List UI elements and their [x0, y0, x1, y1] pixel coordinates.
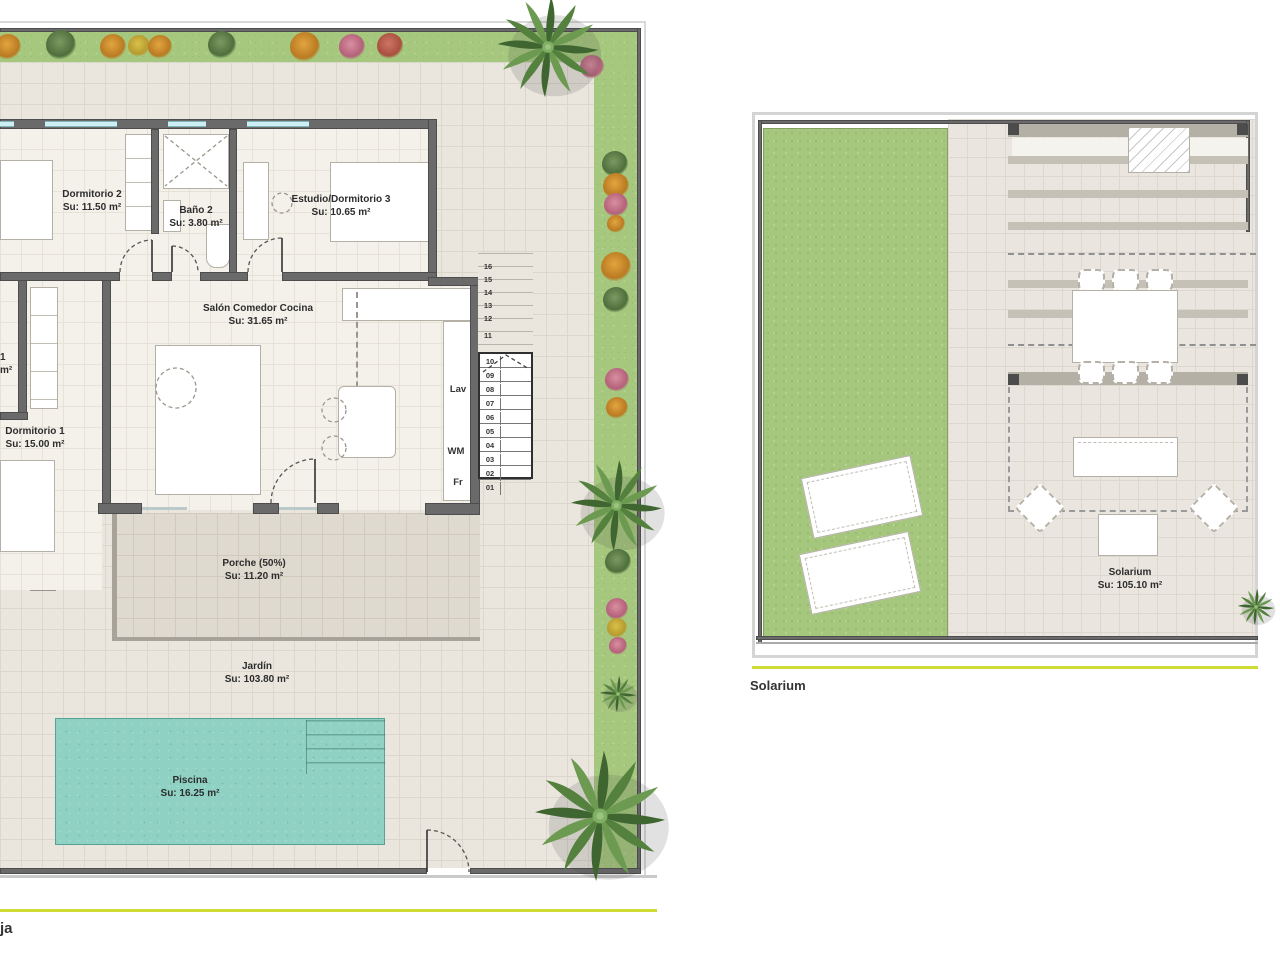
stair-number: 12 — [479, 314, 497, 323]
flower-bed — [339, 34, 365, 60]
wall — [200, 272, 248, 281]
room-name: Porche (50%) — [169, 557, 339, 570]
plot-wall — [758, 120, 762, 644]
room-area: Su: 105.10 m² — [1045, 579, 1215, 592]
stair-number: 14 — [479, 288, 497, 297]
plot-wall-shadow — [756, 642, 1258, 644]
plot-wall — [756, 636, 1258, 640]
outdoor-chair — [1112, 361, 1139, 384]
flower-bed — [604, 193, 628, 217]
pillar — [98, 503, 142, 514]
pergola-post — [1237, 374, 1248, 385]
room-name: Salón Comedor Cocina — [173, 302, 343, 315]
room-label-clipped: 1 m² — [0, 351, 12, 377]
plant-icon — [597, 673, 639, 715]
room-area: Su: 15.00 m² — [0, 438, 120, 451]
room-area: Su: 11.20 m² — [169, 570, 339, 583]
flower-bed — [601, 252, 631, 282]
bush — [603, 287, 629, 313]
room-label-porche: Porche (50%) Su: 11.20 m² — [169, 557, 339, 583]
plan-caption-solarium: Solarium — [750, 678, 806, 693]
bed — [0, 460, 55, 552]
flower-bed — [609, 637, 627, 655]
wall — [425, 503, 480, 515]
glass-sill — [279, 507, 317, 510]
room-area: Su: 103.80 m² — [172, 673, 342, 686]
room-label-solarium: Solarium Su: 105.10 m² — [1045, 566, 1215, 592]
wall — [428, 119, 437, 285]
outdoor-chair — [1078, 361, 1105, 384]
flower-bed — [290, 32, 320, 62]
flower-bed — [377, 33, 403, 59]
outdoor-chair — [1146, 269, 1173, 292]
room-name: Estudio/Dormitorio 3 — [256, 193, 426, 206]
outdoor-sofa — [1073, 437, 1178, 477]
window — [168, 121, 206, 127]
pergola-post — [1237, 124, 1248, 135]
room-area: Su: 16.25 m² — [105, 787, 275, 800]
outdoor-chair — [1112, 269, 1139, 292]
room-name: Dormitorio 2 — [7, 188, 177, 201]
room-area: Su: 10.65 m² — [256, 206, 426, 219]
plan-caption-clipped: ja — [0, 920, 13, 937]
flower-bed — [606, 397, 628, 419]
room-name: Jardín — [172, 660, 342, 673]
pergola-slat — [1008, 190, 1248, 198]
stair-number: 11 — [479, 331, 497, 340]
pergola-slat — [1008, 222, 1248, 230]
pergola-post — [1008, 124, 1019, 135]
flower-bed — [128, 35, 150, 57]
room-label-salon: Salón Comedor Cocina Su: 31.65 m² — [173, 302, 343, 328]
room-area: Su: 31.65 m² — [173, 315, 343, 328]
kitchen-counter-top — [342, 288, 473, 321]
flower-bed — [605, 368, 629, 392]
plot-wall — [0, 868, 427, 874]
caption-rule-yellow — [752, 666, 1258, 669]
vanity — [30, 287, 58, 409]
wall — [18, 280, 27, 420]
room-label-estudio: Estudio/Dormitorio 3 Su: 10.65 m² — [256, 193, 426, 219]
room-label-dormitorio1: Dormitorio 1 Su: 15.00 m² — [0, 425, 120, 451]
window — [0, 121, 14, 127]
room-name: Dormitorio 1 — [0, 425, 120, 438]
outdoor-chair — [1078, 269, 1105, 292]
pergola-dashed-line — [1008, 253, 1256, 255]
room-label-piscina: Piscina Su: 16.25 m² — [105, 774, 275, 800]
window — [45, 121, 117, 127]
porch-edge — [112, 637, 480, 641]
flower-bed — [100, 34, 126, 60]
wall — [152, 272, 172, 281]
wall — [0, 412, 28, 420]
caption-rule-yellow — [0, 909, 657, 912]
bush — [46, 30, 76, 60]
appliance-label-dishwasher: Lav — [443, 384, 473, 395]
wall — [282, 272, 437, 281]
porch-edge — [112, 513, 117, 641]
pool-steps — [306, 720, 385, 774]
floor-plan-image: Lav WM Fr 16 15 14 13 12 11 — [0, 0, 1280, 960]
pergola-post — [1008, 374, 1019, 385]
outdoor-dining-table — [1072, 290, 1178, 363]
toilet — [206, 224, 230, 268]
room-label-jardin: Jardín Su: 103.80 m² — [172, 660, 342, 686]
sofa-set — [155, 345, 261, 495]
shower — [163, 134, 229, 189]
coffee-table — [1098, 514, 1158, 556]
flower-bed — [607, 618, 627, 638]
flower-bed — [148, 35, 172, 59]
palm-tree-icon — [564, 453, 669, 558]
bush — [208, 31, 236, 59]
stair-number: 13 — [479, 301, 497, 310]
appliance-label-fridge: Fr — [443, 477, 473, 488]
palm-tree-icon — [490, 0, 606, 105]
plant-icon — [1235, 586, 1277, 628]
wall — [102, 280, 111, 513]
stair-lower-flight: 10 09 08 07 06 05 04 03 02 01 — [478, 352, 533, 479]
appliance-label-washer: WM — [441, 446, 471, 457]
room-name: Piscina — [105, 774, 275, 787]
flower-bed — [606, 598, 628, 620]
wall — [253, 503, 279, 514]
flower-bed — [607, 215, 625, 233]
room-name: Solarium — [1045, 566, 1215, 579]
stair-number: 16 — [479, 262, 497, 271]
dining-table — [338, 386, 396, 458]
window — [247, 121, 309, 127]
palm-tree-icon — [525, 741, 675, 891]
stair-access-hatch — [1128, 127, 1190, 173]
stair-number: 15 — [479, 275, 497, 284]
kitchen-counter-side — [443, 321, 473, 501]
pillar — [317, 503, 339, 514]
glass-sill — [142, 507, 187, 510]
outdoor-chair — [1146, 361, 1173, 384]
